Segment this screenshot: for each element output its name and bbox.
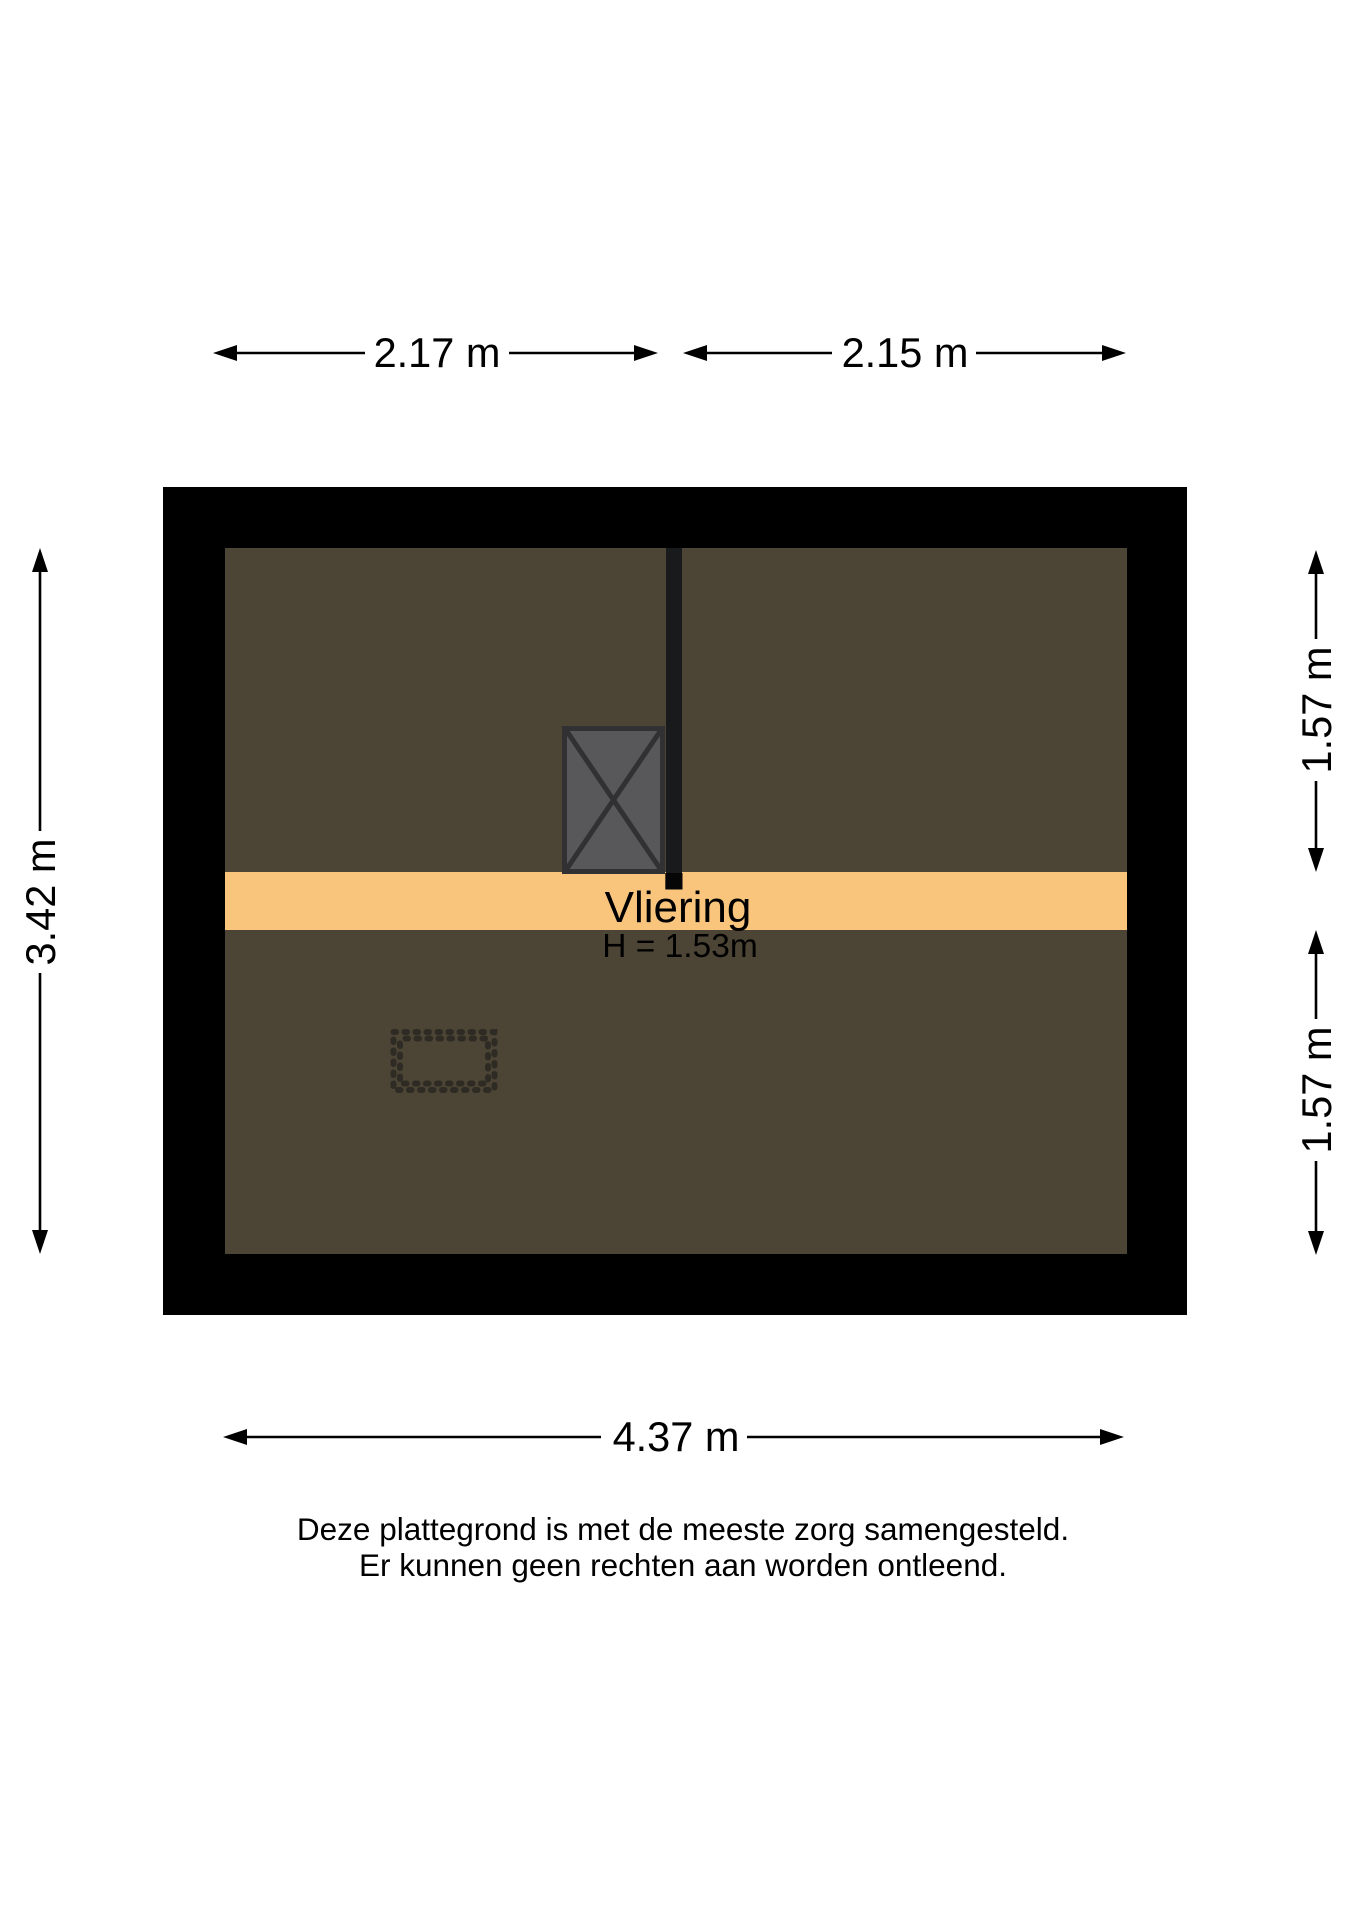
svg-text:Vliering: Vliering xyxy=(605,883,752,932)
svg-text:Deze plattegrond is met de mee: Deze plattegrond is met de meeste zorg s… xyxy=(297,1511,1069,1547)
svg-text:3.42 m: 3.42 m xyxy=(17,839,64,966)
svg-text:1.57 m: 1.57 m xyxy=(1293,1027,1340,1154)
svg-text:4.37 m: 4.37 m xyxy=(613,1413,740,1460)
svg-text:Er kunnen geen rechten aan wor: Er kunnen geen rechten aan worden ontlee… xyxy=(359,1547,1007,1583)
svg-text:2.17 m: 2.17 m xyxy=(374,329,501,376)
svg-text:2.15 m: 2.15 m xyxy=(842,329,969,376)
svg-text:1.57 m: 1.57 m xyxy=(1293,647,1340,774)
svg-text:H = 1.53m: H = 1.53m xyxy=(602,928,757,965)
